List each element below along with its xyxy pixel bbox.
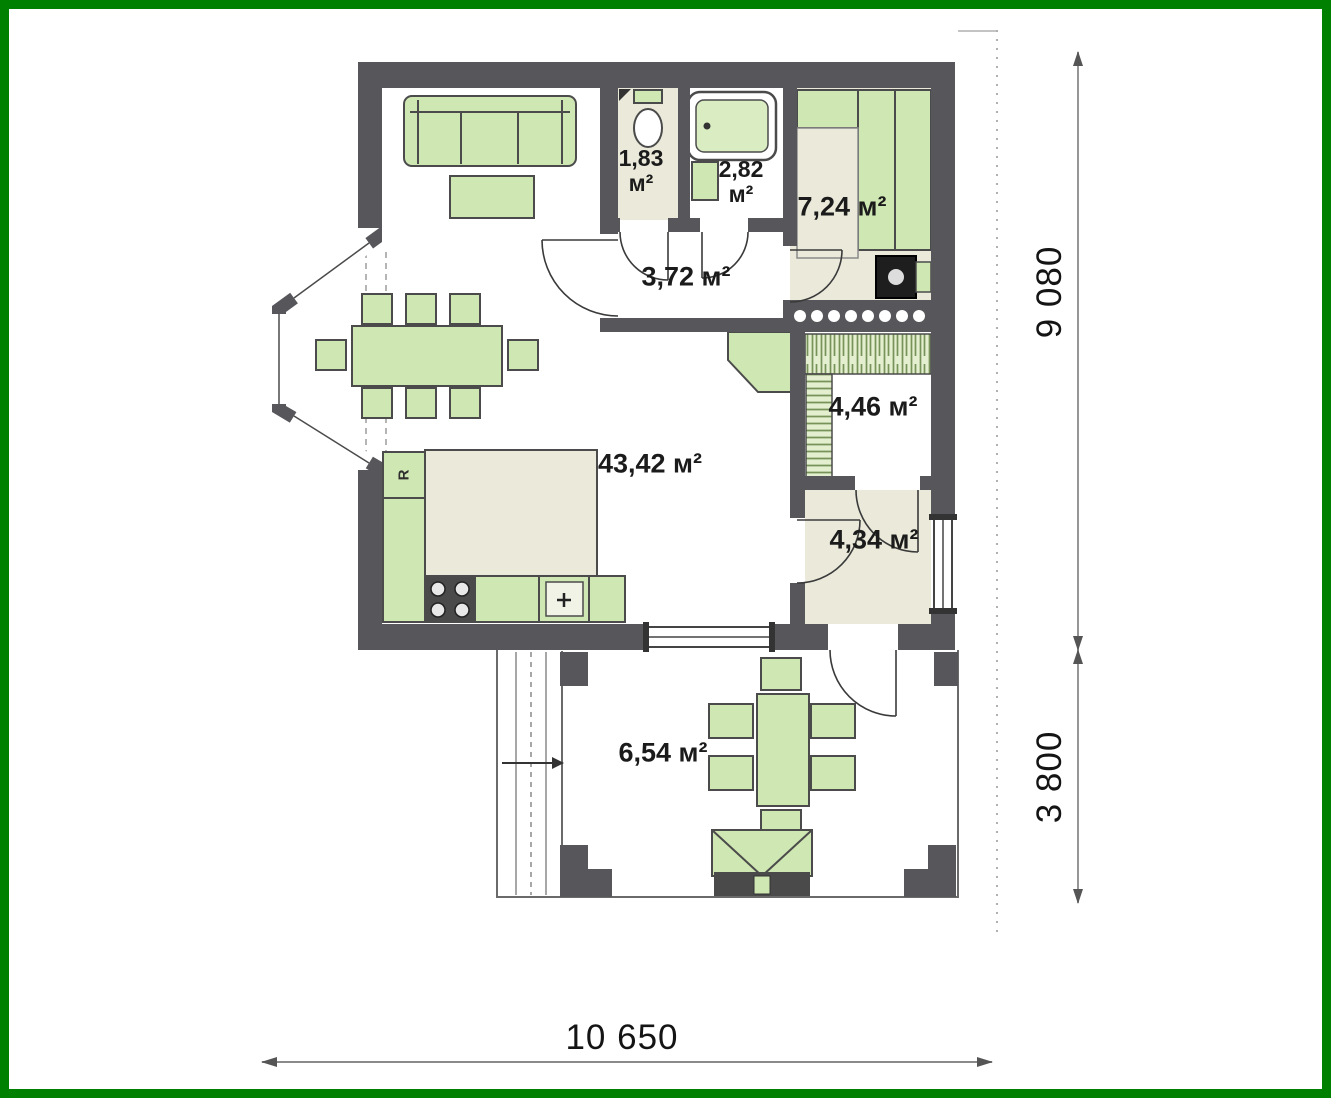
wall-interior	[790, 332, 805, 490]
wall-interior	[678, 88, 690, 220]
wall-interior	[790, 583, 805, 624]
window-south	[643, 622, 775, 652]
chair	[811, 704, 855, 738]
window-east	[929, 514, 957, 614]
coffee-table	[450, 176, 534, 218]
terrace-door-opening	[828, 624, 898, 650]
toilet	[634, 109, 662, 147]
kitchen-counter-left	[383, 498, 425, 622]
chair	[709, 756, 753, 790]
grill	[712, 830, 812, 896]
kitchen-island	[425, 450, 597, 576]
chair	[362, 388, 392, 418]
chair	[508, 340, 538, 370]
dimension-main-depth: 9 080	[1030, 246, 1070, 339]
wall-interior	[920, 476, 931, 490]
room-label-hall: 3,72 м²	[641, 262, 730, 293]
wall-exterior-left-lower	[358, 470, 382, 650]
bath-cabinet	[692, 162, 718, 200]
dimension-overall-width: 10 650	[565, 1018, 678, 1058]
room-label-entry: 4,34 м²	[829, 525, 918, 556]
chair	[811, 756, 855, 790]
column	[934, 652, 958, 686]
chair	[316, 340, 346, 370]
chair	[450, 294, 480, 324]
chair	[406, 294, 436, 324]
room-label-terrace: 6,54 м²	[618, 738, 707, 769]
dimension-terrace-depth: 3 800	[1030, 731, 1070, 824]
kitchen-counter	[589, 576, 625, 622]
sofa	[404, 96, 576, 166]
kitchen-counter	[475, 576, 539, 622]
chair	[709, 704, 753, 738]
boiler-side-cabinet	[916, 262, 931, 292]
wall-interior	[600, 318, 797, 332]
wall-interior	[790, 476, 855, 490]
terrace-table	[757, 694, 809, 806]
bathtub-drain	[704, 123, 711, 130]
toilet-tank	[634, 90, 662, 103]
room-label-wc: 1,83м²	[619, 146, 664, 196]
wall-interior	[748, 218, 797, 232]
wall-exterior-top	[358, 62, 955, 88]
fridge-label: R	[396, 470, 413, 481]
chair	[450, 388, 480, 418]
room-label-living-kitchen: 43,42 м²	[598, 449, 702, 480]
terrace-steps	[516, 651, 562, 896]
dining-table	[352, 326, 502, 386]
column	[560, 845, 612, 897]
wall-interior	[600, 88, 618, 234]
terrace	[497, 650, 958, 897]
floor-plan-drawing	[0, 0, 1331, 1098]
wall-interior	[668, 218, 700, 232]
floor-plan-page: 1,83м² 2,82м² 7,24 м² 3,72 м² 4,46 м² 4,…	[0, 0, 1331, 1098]
wall-interior	[600, 218, 620, 232]
chair	[761, 658, 801, 690]
column	[560, 652, 588, 686]
kitchen	[383, 450, 625, 622]
wall-interior	[790, 490, 805, 518]
steps-direction-arrow	[502, 757, 564, 769]
column	[904, 845, 956, 897]
terrace-dining-set	[709, 658, 855, 842]
room-label-bedroom: 7,24 м²	[797, 192, 886, 223]
vertical-dimension	[1073, 51, 1083, 904]
wall-exterior-left-upper	[358, 62, 382, 228]
room-label-storage: 4,46 м²	[828, 392, 917, 423]
entry-floor	[805, 490, 931, 624]
chair	[362, 294, 392, 324]
chair	[406, 388, 436, 418]
room-label-bathroom: 2,82м²	[719, 157, 764, 207]
wardrobe-hatch	[805, 334, 931, 374]
horizontal-dimension	[261, 1057, 993, 1067]
shelf	[797, 90, 861, 128]
